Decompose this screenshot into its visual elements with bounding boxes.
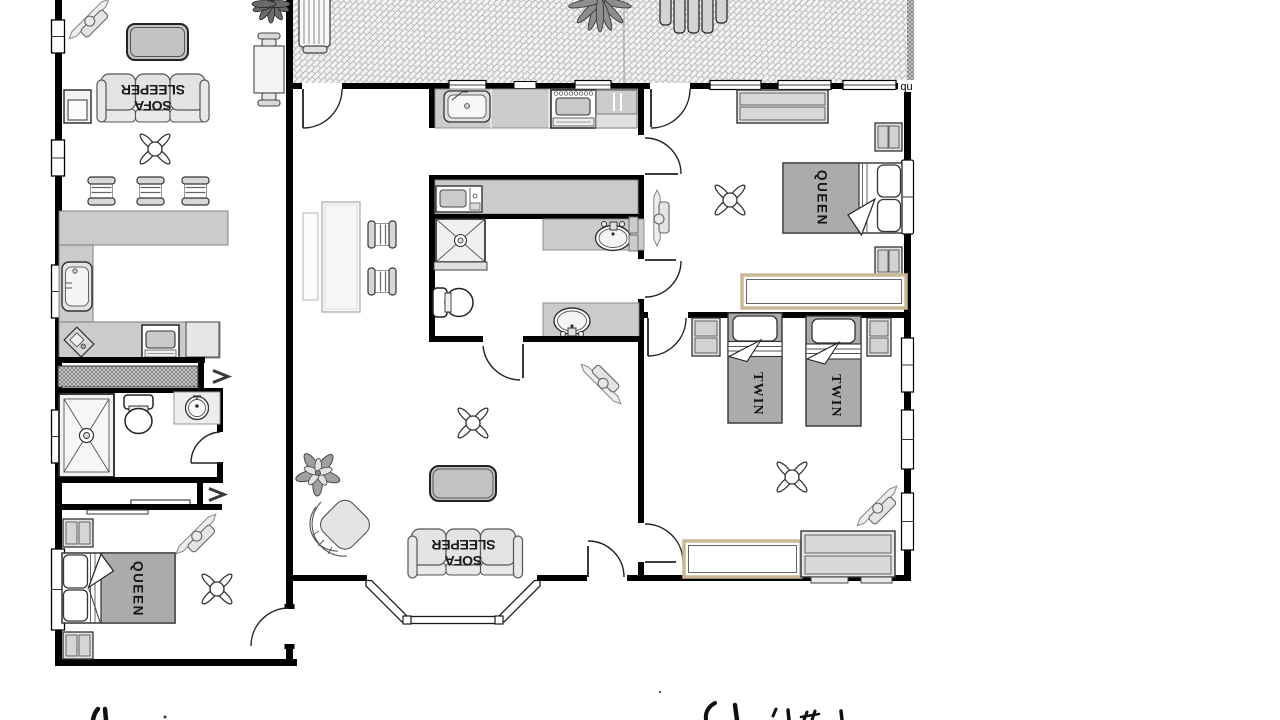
svg-text:TWIN: TWIN bbox=[750, 372, 765, 416]
svg-text:TWIN: TWIN bbox=[828, 374, 843, 418]
svg-text:QUEEN: QUEEN bbox=[130, 561, 145, 617]
svg-text:QUEEN: QUEEN bbox=[814, 170, 829, 226]
svg-text:SLEEPER: SLEEPER bbox=[431, 537, 495, 553]
svg-text:SOFA: SOFA bbox=[445, 553, 482, 569]
svg-text:qu: qu bbox=[900, 81, 912, 93]
svg-text:SOFA: SOFA bbox=[134, 98, 171, 114]
svg-text:SLEEPER: SLEEPER bbox=[121, 82, 185, 98]
